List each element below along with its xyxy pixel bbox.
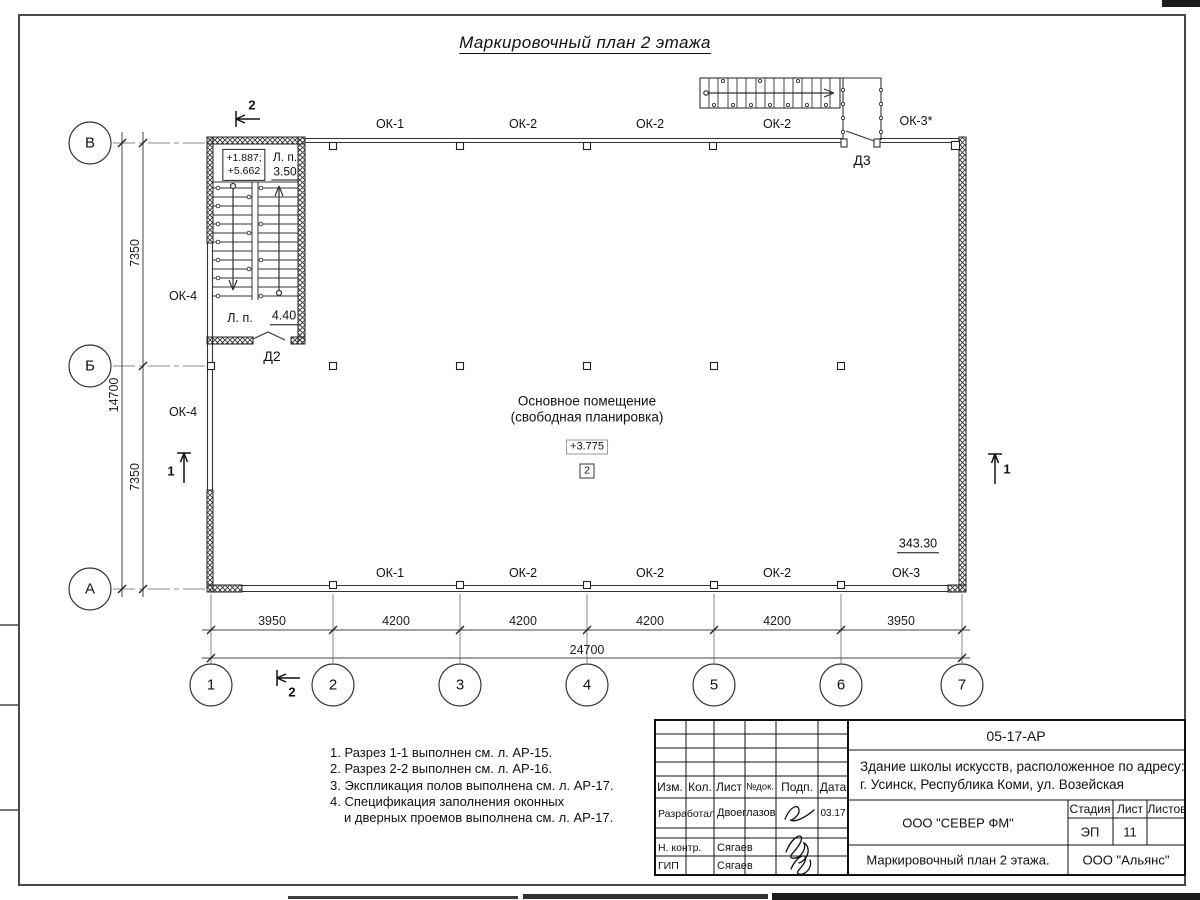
stair-arrow-down <box>229 184 237 291</box>
room-area: 343.30 <box>897 537 939 553</box>
window-label: ОК-2 <box>509 118 537 131</box>
stair-arrow-up <box>275 186 283 296</box>
room-name-2: (свободная планировка) <box>511 410 664 424</box>
dim-text: 3950 <box>258 615 286 628</box>
door-d2-leaf <box>253 332 285 340</box>
project-name-2: г. Усинск, Республика Коми, ул. Возейска… <box>860 777 1124 794</box>
tb-col-kol: Кол. <box>688 781 712 793</box>
landing-label: Л. п. <box>227 312 252 325</box>
note-line: 2. Разрез 2-2 выполнен см. л. АР-16. <box>330 761 614 777</box>
sheets-label: Листов <box>1148 803 1187 815</box>
door-label: Д2 <box>263 349 280 363</box>
note-line: и дверных проемов выполнена см. л. АР-17… <box>330 810 614 826</box>
drawing-title: Маркировочный план 2 этажа. <box>866 854 1049 867</box>
stage-value: ЭП <box>1081 826 1100 839</box>
dim-text: 4200 <box>509 615 537 628</box>
stair-arrow-right <box>704 89 834 97</box>
axis-col-label: 4 <box>583 678 591 693</box>
axis-col-label: 5 <box>710 678 718 693</box>
signatures <box>785 807 814 875</box>
landing-value: 4.40 <box>270 309 298 325</box>
axis-col-label: 2 <box>329 678 337 693</box>
landing-value: 3.50 <box>271 166 298 181</box>
note-line: 1. Разрез 1-1 выполнен см. л. АР-15. <box>330 745 614 761</box>
sheet-label: Лист <box>1117 803 1143 815</box>
window-label: ОК-2 <box>763 567 791 580</box>
landing-label: Л. п. <box>273 151 297 163</box>
section-label: 1 <box>1003 463 1010 476</box>
dim-text: 4200 <box>382 615 410 628</box>
axis-col-label: 1 <box>207 678 215 693</box>
external-stair <box>700 78 883 147</box>
tb-col-podp: Подп. <box>781 781 813 793</box>
axis-row-label: А <box>85 582 95 597</box>
notes-block: 1. Разрез 1-1 выполнен см. л. АР-15. 2. … <box>330 745 614 826</box>
tb-date-1: 03.17 <box>820 809 845 819</box>
sheet-value: 11 <box>1123 826 1137 839</box>
dim-text: 7350 <box>129 239 142 267</box>
window-label: ОК-1 <box>376 118 404 131</box>
door-label: Д3 <box>853 153 870 167</box>
dim-text: 3950 <box>887 615 915 628</box>
section-label: 2 <box>288 686 295 699</box>
window-label: ОК-4 <box>169 406 197 419</box>
dim-text: 4200 <box>763 615 791 628</box>
stair-elevation-1: +1.887; <box>226 152 261 165</box>
axis-col-label: 6 <box>837 678 845 693</box>
axis-row-label: В <box>85 136 95 151</box>
page-title: Маркировочный план 2 этажа <box>459 34 711 54</box>
drawing-sheet: Маркировочный план 2 этажа ОК-1 ОК-2 ОК-… <box>0 0 1200 900</box>
org-top: ООО "СЕВЕР ФМ" <box>902 817 1014 830</box>
axis-col-label: 7 <box>958 678 966 693</box>
stair-elevation-2: +5.662 <box>226 165 261 178</box>
window-label: ОК-3* <box>900 115 933 128</box>
note-line: 3. Экспликация полов выполнена см. л. АР… <box>330 778 614 794</box>
room-number: 2 <box>580 464 595 479</box>
tb-name-1: Двоеглазов <box>717 807 775 821</box>
tb-role-3: ГИП <box>658 860 679 873</box>
tb-col-ndok: №док. <box>746 782 774 792</box>
columns <box>208 142 960 589</box>
tb-col-list: Лист <box>716 781 742 793</box>
dim-text: 7350 <box>129 463 142 491</box>
tb-role-1: Разработал <box>658 808 715 821</box>
org-bottom: ООО "Альянс" <box>1083 854 1170 867</box>
stage-label: Стадия <box>1070 803 1111 815</box>
window-label: ОК-2 <box>636 118 664 131</box>
door-d3-leaf <box>846 131 877 142</box>
dim-text-total: 24700 <box>570 644 605 657</box>
window-label: ОК-2 <box>763 118 791 131</box>
doc-code: 05-17-АР <box>986 729 1045 743</box>
tb-name-3: Сягаев <box>717 860 753 874</box>
window-label: ОК-2 <box>509 567 537 580</box>
window-label: ОК-1 <box>376 567 404 580</box>
axis-row-label: Б <box>85 359 95 374</box>
section-label: 1 <box>167 465 174 478</box>
room-name: Основное помещение <box>518 394 656 408</box>
window-label: ОК-4 <box>169 290 197 303</box>
tb-role-2: Н. контр. <box>658 842 701 855</box>
tb-col-izm: Изм. <box>657 781 683 793</box>
window-label: ОК-3 <box>892 567 920 580</box>
dim-text-total: 14700 <box>108 378 121 413</box>
tb-name-2: Сягаев <box>717 842 753 856</box>
dim-text: 4200 <box>636 615 664 628</box>
stair-elevation-box: +1.887; +5.662 <box>222 149 265 181</box>
axis-col-label: 3 <box>456 678 464 693</box>
tb-col-data: Дата <box>820 781 847 793</box>
project-name-1: Здание школы искусств, расположенное по … <box>860 759 1185 776</box>
room-elevation: +3.775 <box>566 440 608 455</box>
window-label: ОК-2 <box>636 567 664 580</box>
section-label: 2 <box>248 99 255 112</box>
note-line: 4. Спецификация заполнения оконных <box>330 794 614 810</box>
